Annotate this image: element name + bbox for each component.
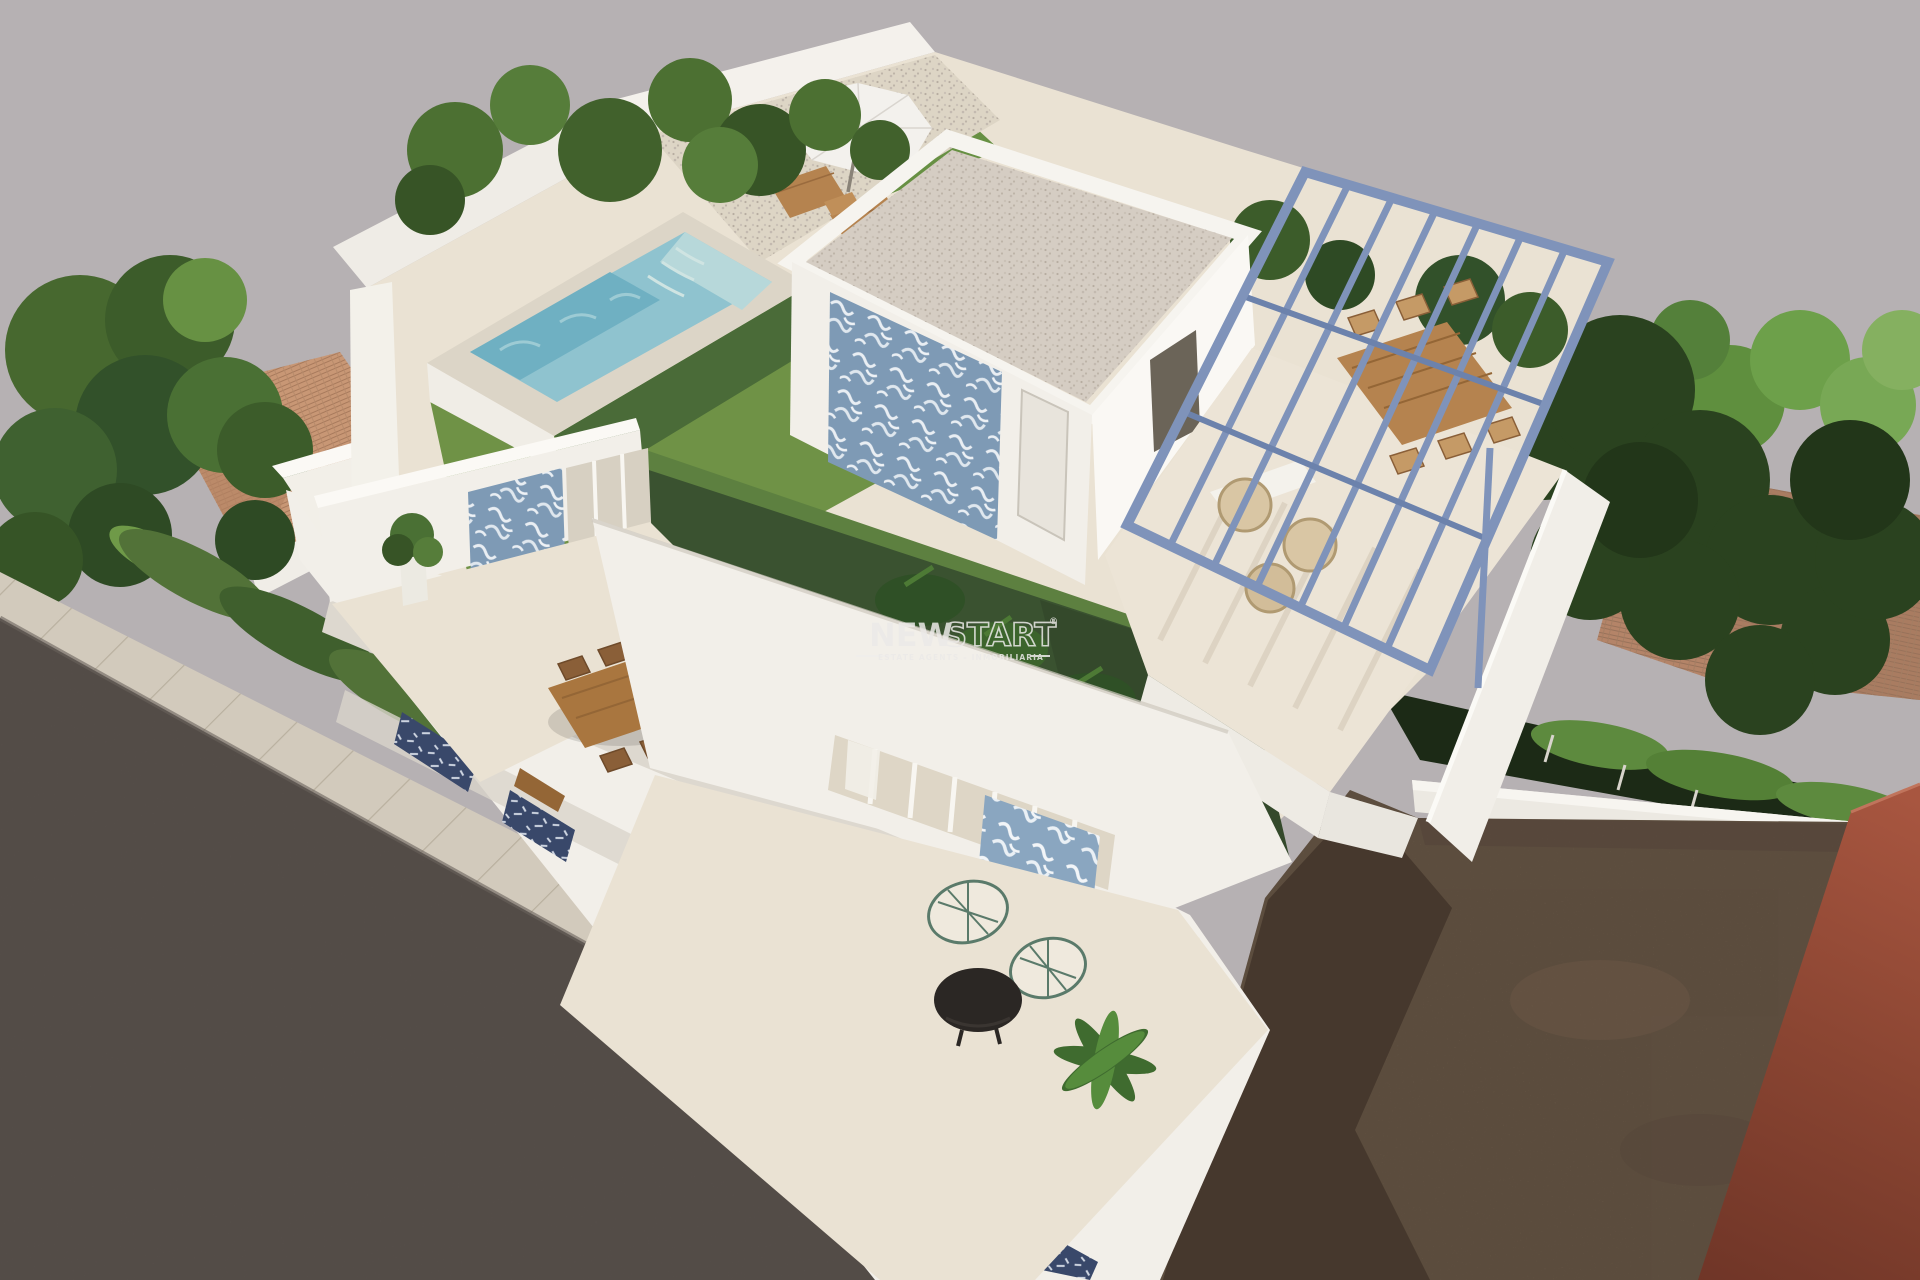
watermark: NEW START ® ESTATE AGENTS – INMOBILIARIA [856,616,1058,662]
dirt-patch [1510,960,1690,1040]
watermark-registered: ® [1049,617,1058,627]
watermark-tagline: ESTATE AGENTS – INMOBILIARIA [878,653,1044,662]
watermark-brand-solid: NEW [869,616,953,654]
penthouse-door-sw [1018,390,1068,540]
watermark-brand-outline: START [944,616,1056,654]
villa-render-scene: NEW START ® ESTATE AGENTS – INMOBILIARIA [0,0,1920,1280]
render-canvas: NEW START ® ESTATE AGENTS – INMOBILIARIA [0,0,1920,1280]
